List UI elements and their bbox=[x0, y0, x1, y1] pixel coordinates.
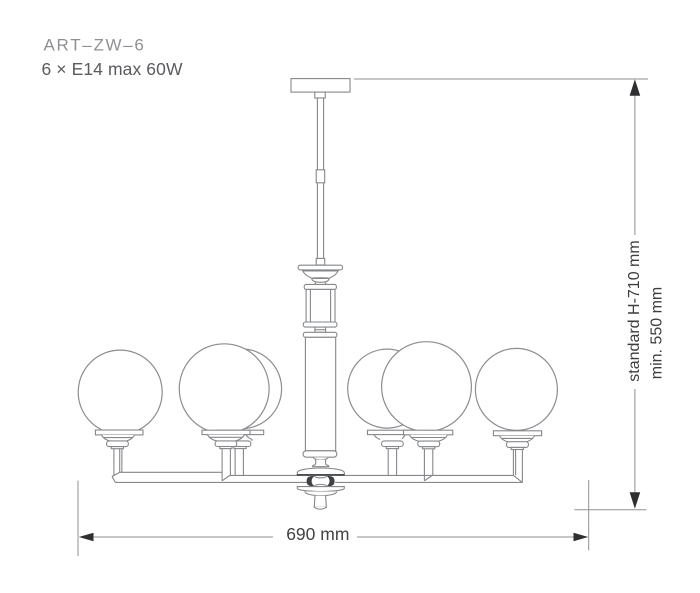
svg-text:min. 550 mm: min. 550 mm bbox=[649, 287, 666, 379]
svg-text:6 × E14 max 60W: 6 × E14 max 60W bbox=[42, 59, 183, 79]
svg-text:ART–ZW–6: ART–ZW–6 bbox=[44, 36, 146, 55]
svg-text:standard H-710 mm: standard H-710 mm bbox=[626, 240, 643, 381]
svg-text:690 mm: 690 mm bbox=[286, 524, 349, 544]
